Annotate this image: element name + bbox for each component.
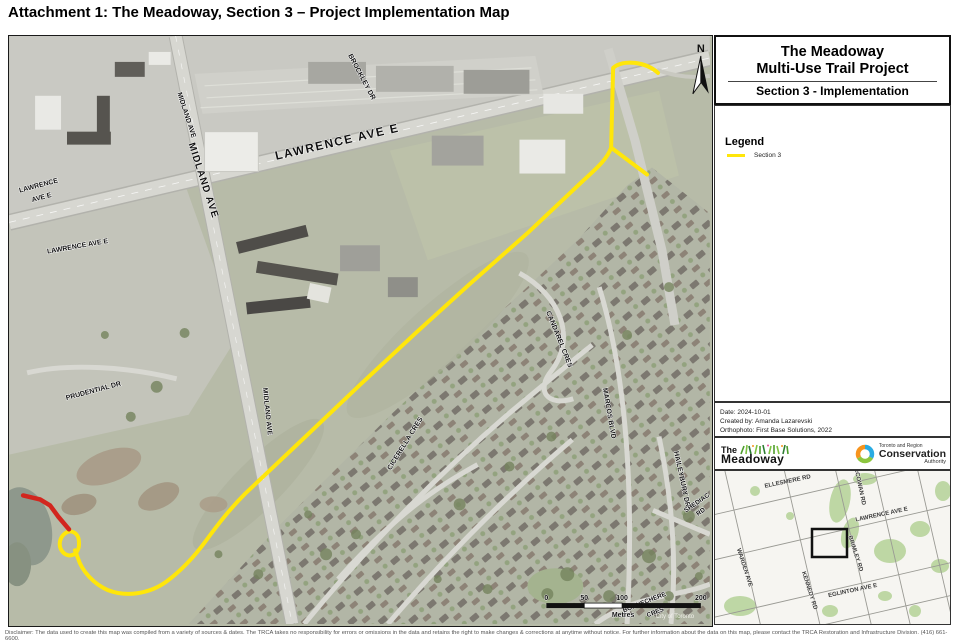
credit-date: Date: 2024-10-01 bbox=[720, 408, 950, 417]
disclaimer-text: Disclaimer: The data used to create this… bbox=[5, 630, 953, 642]
meadoway-logo-name: Meadoway bbox=[721, 455, 791, 464]
inset-map-canvas: ELLESMERE RD McCOWAN RD LAWRENCE AVE E B… bbox=[715, 471, 950, 624]
title-divider bbox=[728, 81, 937, 82]
inset-locator-map: ELLESMERE RD McCOWAN RD LAWRENCE AVE E B… bbox=[714, 470, 951, 625]
aerial-map: LAWRENCE AVE E LAWRENCE AVE E LAWRENCE A… bbox=[8, 35, 713, 627]
map-title-box: The Meadoway Multi-Use Trail Project Sec… bbox=[714, 35, 951, 105]
map-side-panel: The Meadoway Multi-Use Trail Project Sec… bbox=[714, 35, 953, 625]
city-of-toronto-watermark: City of Toronto bbox=[656, 614, 695, 620]
legend-heading: Legend bbox=[725, 136, 950, 148]
credit-created-by: Created by: Amanda Lazarevski bbox=[720, 417, 950, 426]
map-subtitle: Section 3 - Implementation bbox=[716, 84, 949, 98]
map-title-line1: The Meadoway bbox=[716, 44, 949, 61]
logos-box: The Meadoway bbox=[714, 437, 951, 470]
meadoway-logo: The Meadoway bbox=[721, 443, 791, 464]
scale-tick-0: 0 bbox=[544, 595, 548, 602]
legend-swatch-section3 bbox=[727, 154, 745, 157]
credits-box: Date: 2024-10-01 Created by: Amanda Laza… bbox=[714, 402, 951, 437]
aerial-map-canvas: LAWRENCE AVE E LAWRENCE AVE E LAWRENCE A… bbox=[9, 36, 710, 624]
credit-orthophoto: Orthophoto: First Base Solutions, 2022 bbox=[720, 426, 950, 435]
map-title-line2: Multi-Use Trail Project bbox=[716, 61, 949, 78]
legend-label-section3: Section 3 bbox=[754, 152, 781, 159]
trca-swirl-icon bbox=[854, 443, 876, 465]
scale-units: Metres bbox=[612, 612, 635, 619]
scale-tick-50: 50 bbox=[580, 595, 588, 602]
trca-logo: Toronto and Region Conservation Authorit… bbox=[854, 443, 946, 465]
north-label: N bbox=[697, 43, 705, 55]
legend-item-section3: Section 3 bbox=[725, 152, 950, 159]
park bbox=[527, 568, 583, 604]
legend-box: Legend Section 3 bbox=[714, 105, 951, 402]
scale-tick-100: 100 bbox=[616, 595, 628, 602]
attachment-title: Attachment 1: The Meadoway, Section 3 – … bbox=[8, 4, 510, 21]
trca-logo-conservation: Conservation bbox=[879, 449, 946, 459]
scale-tick-200: 200 bbox=[695, 595, 707, 602]
